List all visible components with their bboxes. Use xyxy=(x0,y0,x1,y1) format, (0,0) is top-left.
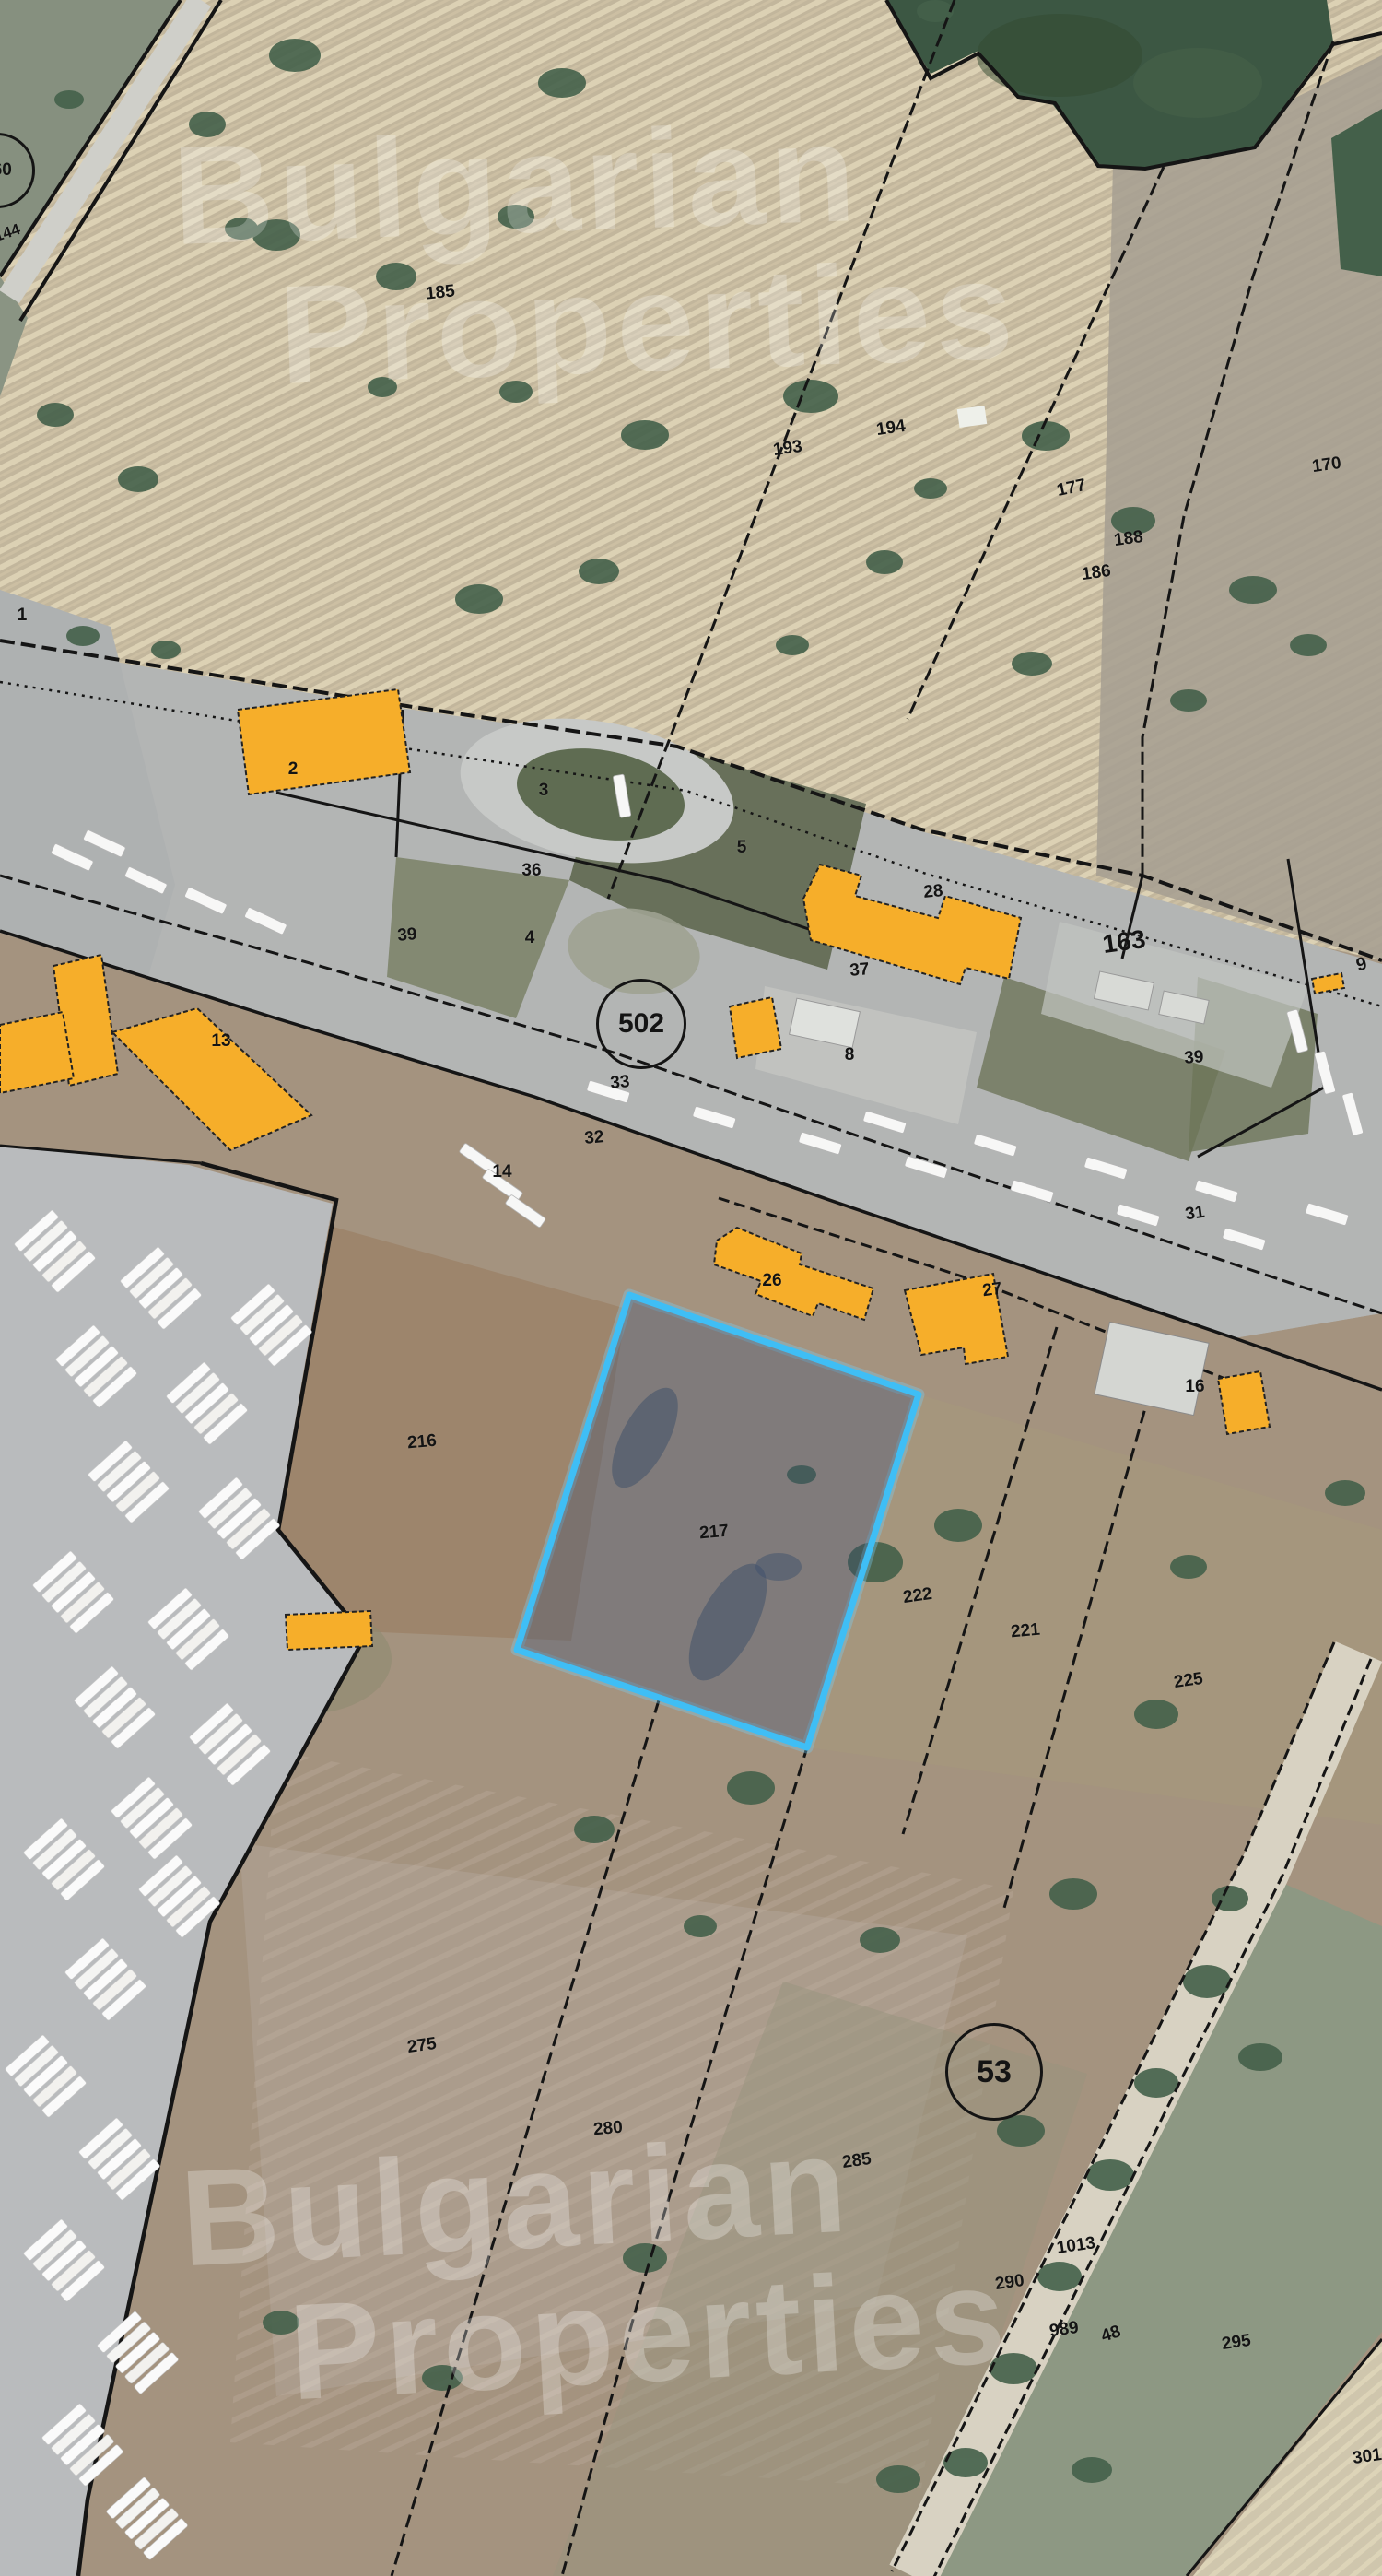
watermark-top: Bulgarian Properties xyxy=(170,96,1020,411)
watermark-line2: Properties xyxy=(286,2247,1013,2424)
cadastral-map: Bulgarian Properties Bulgarian Propertie… xyxy=(0,0,1382,2576)
watermark-line2: Properties xyxy=(276,239,1020,407)
watermark-bottom: Bulgarian Properties xyxy=(178,2108,1013,2429)
